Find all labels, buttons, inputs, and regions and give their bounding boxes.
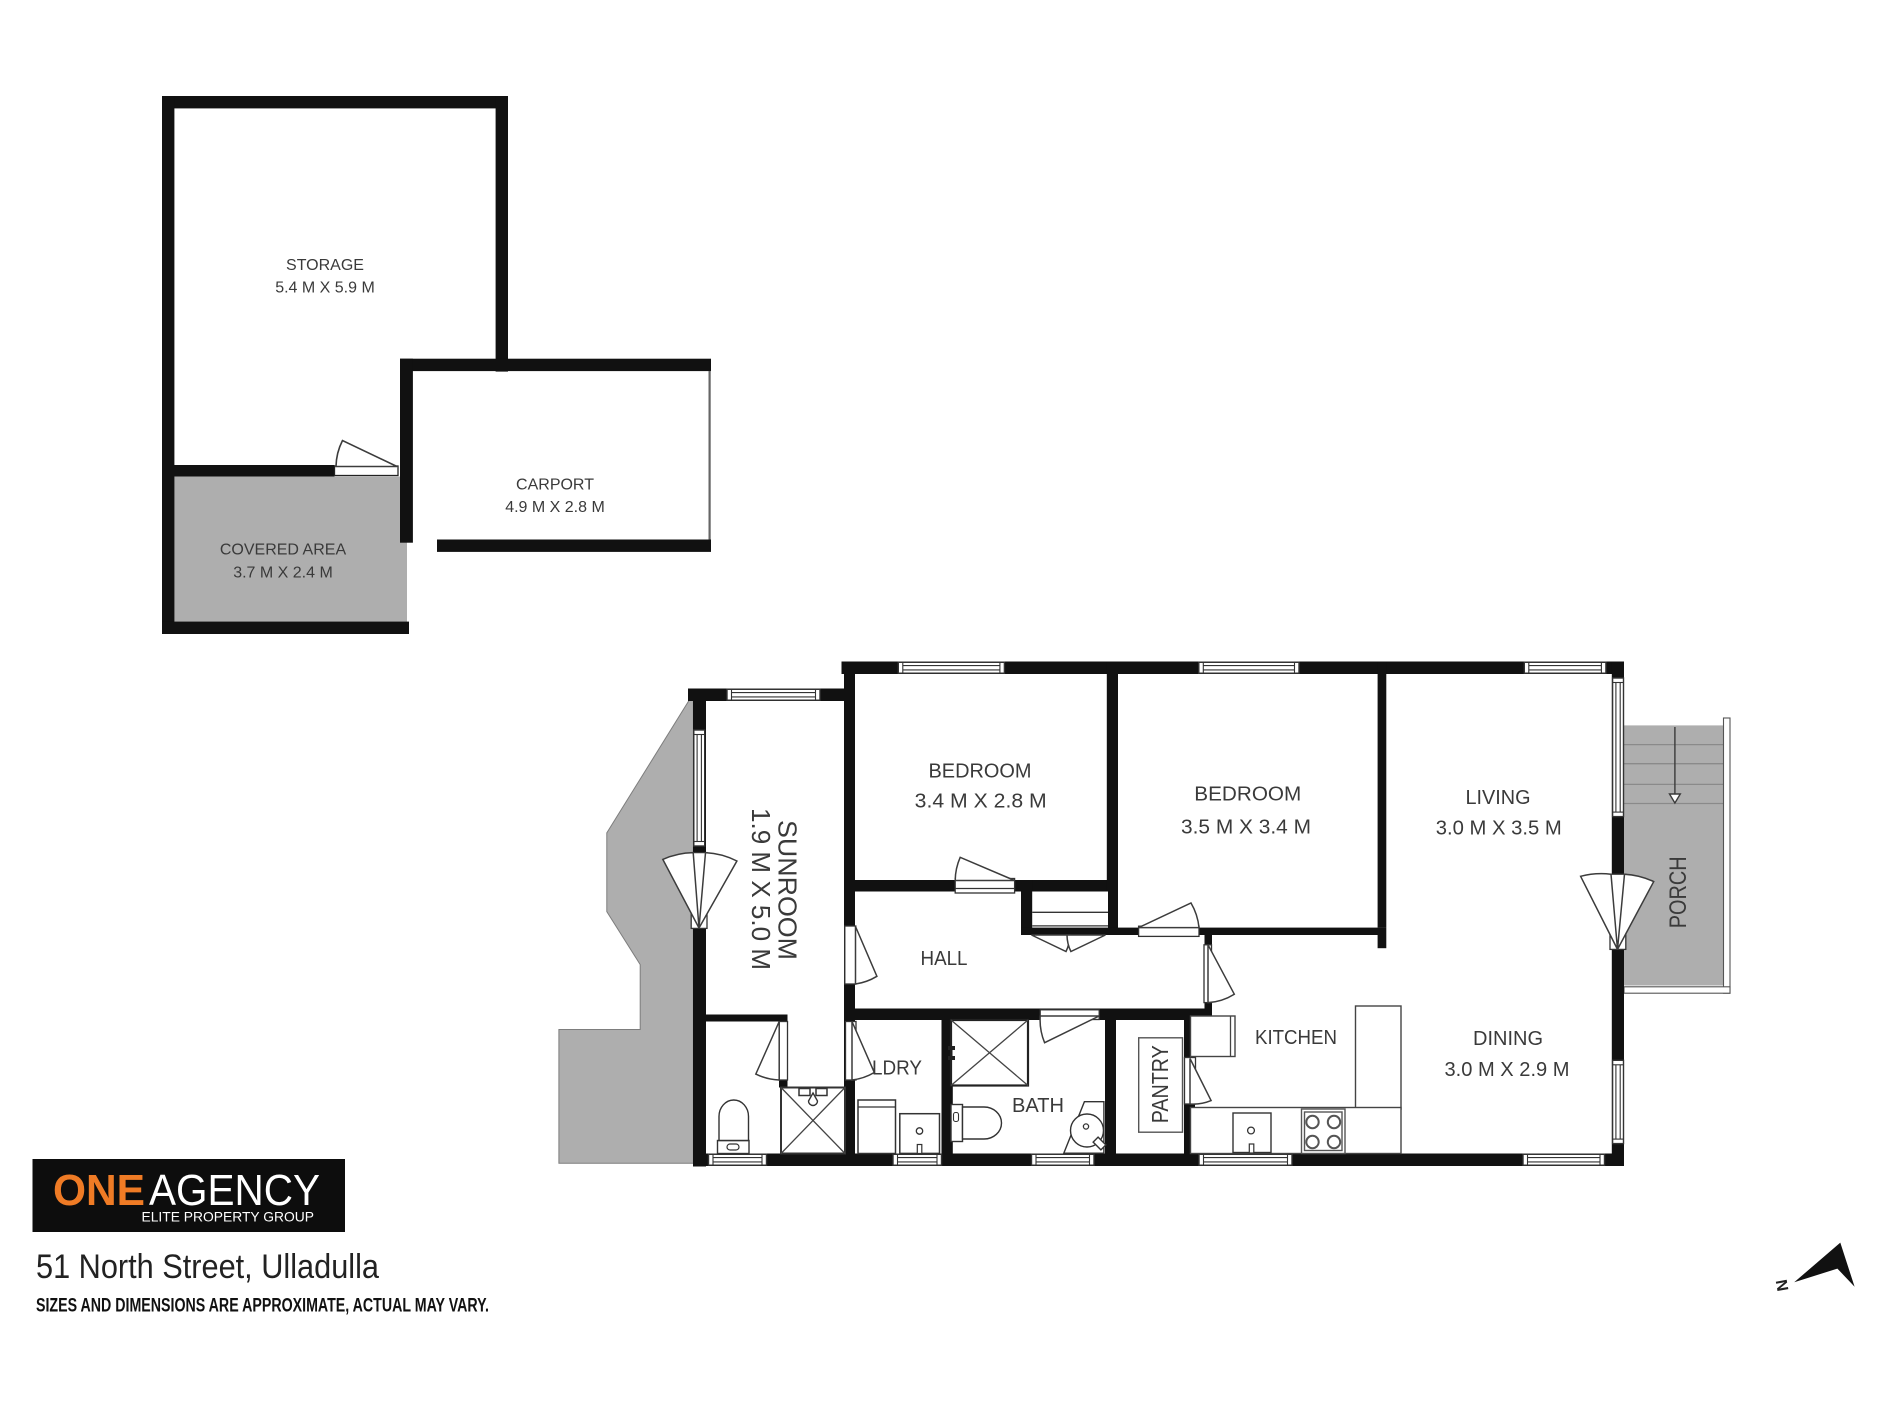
svg-text:3.0 M X 3.5 M: 3.0 M X 3.5 M [1436, 818, 1562, 840]
svg-text:ONE: ONE [53, 1166, 145, 1215]
svg-text:3.5 M X 3.4 M: 3.5 M X 3.4 M [1181, 817, 1311, 839]
svg-text:KITCHEN: KITCHEN [1255, 1027, 1337, 1049]
svg-text:LDRY: LDRY [872, 1058, 922, 1080]
svg-text:1.9 M X 5.0 M: 1.9 M X 5.0 M [746, 808, 776, 970]
svg-text:LIVING: LIVING [1466, 787, 1531, 809]
svg-text:51 North Street, Ulladulla: 51 North Street, Ulladulla [36, 1248, 379, 1286]
svg-text:COVERED AREA: COVERED AREA [220, 542, 347, 559]
svg-text:CARPORT: CARPORT [516, 477, 594, 494]
svg-text:ELITE PROPERTY GROUP: ELITE PROPERTY GROUP [142, 1209, 315, 1225]
svg-text:DINING: DINING [1473, 1028, 1543, 1050]
svg-text:SUNROOM: SUNROOM [773, 820, 803, 960]
svg-text:3.7 M X 2.4 M: 3.7 M X 2.4 M [233, 565, 333, 582]
svg-text:4.9 M X 2.8 M: 4.9 M X 2.8 M [505, 499, 605, 516]
svg-text:5.4 M X 5.9 M: 5.4 M X 5.9 M [275, 280, 375, 297]
svg-text:SIZES AND DIMENSIONS ARE APPRO: SIZES AND DIMENSIONS ARE APPROXIMATE, AC… [36, 1296, 489, 1317]
svg-text:BATH: BATH [1012, 1095, 1064, 1117]
svg-text:STORAGE: STORAGE [286, 257, 364, 274]
svg-text:PORCH: PORCH [1665, 856, 1692, 928]
svg-text:BEDROOM: BEDROOM [929, 761, 1032, 783]
svg-text:PANTRY: PANTRY [1147, 1045, 1173, 1123]
svg-text:3.0 M X 2.9 M: 3.0 M X 2.9 M [1445, 1059, 1570, 1081]
svg-text:BEDROOM: BEDROOM [1194, 784, 1301, 806]
svg-text:3.4 M X 2.8 M: 3.4 M X 2.8 M [915, 791, 1047, 813]
svg-text:HALL: HALL [921, 948, 968, 970]
